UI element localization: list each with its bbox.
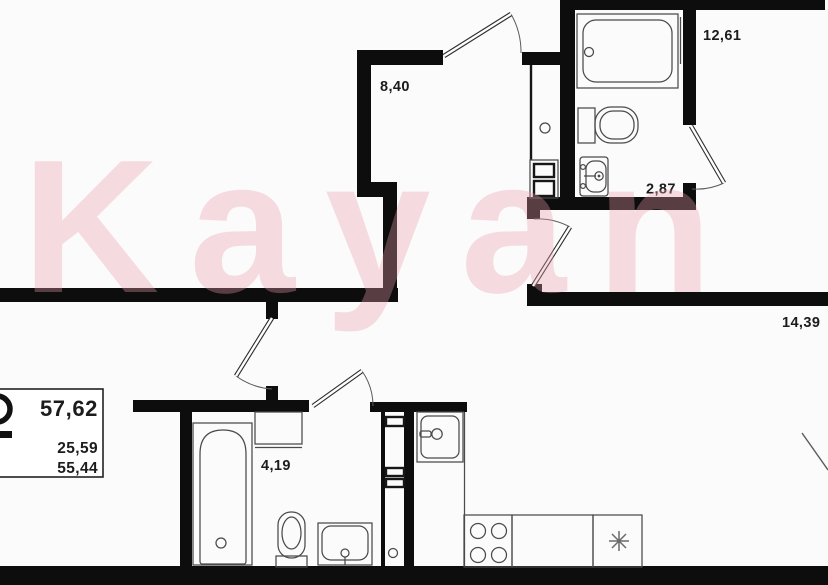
wall-shaft-top — [370, 402, 467, 412]
ventilation-shaft-bottom — [386, 417, 404, 558]
floor-plan: 57,62 25,59 55,44 8,40 12,61 2,87 14,39 … — [0, 0, 828, 585]
faucet-icon — [341, 549, 349, 557]
washbasin-bottom — [318, 523, 372, 565]
wall-long-left — [0, 288, 398, 302]
tub-drain-icon — [585, 48, 594, 57]
shaft-right-wall — [404, 412, 414, 567]
wall-hall-top-stub — [522, 52, 561, 65]
tub-drain-icon — [216, 538, 226, 548]
wall-bathroom-right-stub — [683, 183, 696, 210]
room-label-bathroom: 2,87 — [646, 182, 676, 198]
floor-plan-drawing: 57,62 25,59 55,44 8,40 12,61 2,87 14,39 … — [0, 0, 828, 585]
washbasin-top — [580, 157, 608, 196]
wall-wc-left — [180, 400, 192, 580]
wall-step-vertical — [383, 182, 397, 292]
toilet-bottom — [276, 512, 307, 567]
area-mid-value: 25,59 — [57, 440, 98, 457]
fridge-snowflake — [593, 515, 642, 567]
wall-wc-top — [133, 400, 309, 412]
kitchen-sink-unit — [417, 412, 463, 462]
stove-burners — [464, 515, 512, 567]
room-label-bedroom: 12,61 — [703, 28, 741, 44]
room-label-hallway: 8,40 — [380, 79, 410, 95]
wall-bathroom-bottom — [527, 197, 695, 210]
room-label-second-bathroom: 4,19 — [261, 458, 291, 474]
wall-bathroom-left — [560, 0, 575, 205]
corridor-door-stub-top — [527, 210, 540, 219]
total-area-value: 57,62 — [40, 396, 98, 421]
door-arc-bathroom — [692, 183, 724, 189]
door-arc-wc — [362, 371, 373, 406]
bathtub-top — [577, 14, 681, 88]
room-labels: 8,40 12,61 2,87 14,39 4,19 — [261, 28, 820, 474]
room-label-kitchen-living: 14,39 — [782, 315, 820, 331]
area-bottom-value: 55,44 — [57, 460, 98, 477]
door-stub-top — [266, 302, 278, 319]
door-arc-corridor — [534, 219, 570, 227]
wall-bathroom-right — [683, 5, 696, 125]
kitchen-counter — [512, 515, 593, 567]
door-leaf-balcony — [802, 433, 828, 470]
area-stats-box: 57,62 25,59 55,44 — [0, 389, 103, 477]
toilet-top — [578, 107, 638, 143]
wall-bottom — [0, 566, 828, 585]
walls — [0, 0, 828, 585]
door-arc-hall — [511, 14, 521, 53]
washing-machine — [255, 412, 302, 448]
bathtub-bottom — [193, 423, 252, 565]
apartment-type-dash-icon — [0, 431, 12, 438]
shaft-left-line — [381, 412, 385, 567]
ventilation-shaft-top — [530, 65, 558, 198]
toilet-tank — [578, 108, 595, 143]
wall-hall-left — [357, 50, 371, 197]
wall-long-right — [527, 292, 828, 306]
